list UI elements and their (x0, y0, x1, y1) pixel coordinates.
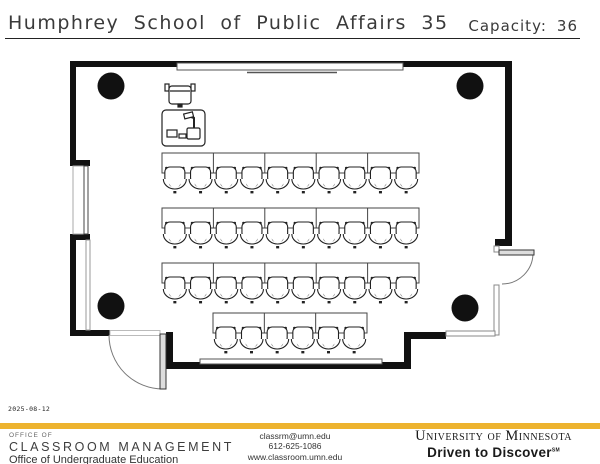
doors (109, 250, 534, 389)
wall-right-thin-lower (494, 285, 499, 335)
chair-icon (395, 277, 418, 304)
chair-icon (189, 167, 212, 194)
floor-plan-page: Humphrey School of Public Affairs 35 Cap… (0, 0, 600, 464)
chair-icon (343, 222, 366, 249)
column-icon (457, 73, 484, 100)
chair-icon (292, 277, 315, 304)
desk-row (162, 263, 419, 303)
instructor-station (162, 84, 205, 146)
wall-step-vertical (404, 332, 411, 369)
plan-date: 2025-08-12 (8, 405, 50, 413)
desk-row (162, 153, 419, 193)
whiteboard-rear (200, 359, 382, 364)
chair-icon (240, 327, 263, 354)
mouse-icon (179, 134, 186, 138)
chair-icon (317, 327, 340, 354)
chair-icon (395, 167, 418, 194)
chair-icon (318, 222, 341, 249)
door-leaf-left (160, 334, 166, 389)
window-glass-icon (84, 166, 88, 234)
chair-icon (240, 222, 263, 249)
tagline: Driven to DiscoverSM (415, 446, 572, 460)
floor-plan-svg (0, 0, 600, 400)
chair-icon (215, 167, 238, 194)
chair-icon (163, 222, 186, 249)
page-title: Humphrey School of Public Affairs 35 (8, 12, 449, 34)
chair-icon (240, 167, 263, 194)
tagline-service-mark: SM (552, 447, 560, 453)
chair-icon (215, 277, 238, 304)
contact-email: classrm@umn.edu (225, 431, 365, 441)
chair-icon (318, 277, 341, 304)
wall-bottom-left (70, 330, 110, 336)
chair-icon (395, 222, 418, 249)
wall-door-jamb (166, 332, 173, 369)
desk-row (162, 208, 419, 248)
wall-right-upper (505, 61, 512, 242)
chair-icon (266, 167, 289, 194)
chair-icon (266, 327, 289, 354)
column-icon (452, 295, 479, 322)
wall-chase (86, 240, 90, 330)
footer-brand-block: University of Minnesota Driven to Discov… (415, 429, 572, 459)
chair-icon (318, 167, 341, 194)
chair-icon (369, 277, 392, 304)
footer-office-block: OFFICE OF CLASSROOM MANAGEMENT Office of… (9, 433, 234, 464)
footer-contact-block: classrm@umn.edu 612-625-1086 www.classro… (225, 431, 365, 462)
column-icon (98, 293, 125, 320)
chair-icon (343, 327, 366, 354)
chair-icon (343, 167, 366, 194)
door-swing-left (109, 335, 163, 389)
table (162, 263, 419, 283)
chair-icon (266, 277, 289, 304)
capacity-readout: Capacity:36 (468, 17, 578, 35)
column-icon (98, 73, 125, 100)
wall-bottom (166, 362, 411, 369)
chair-icon (215, 222, 238, 249)
door-leaf-right (499, 250, 534, 255)
instructor-chair-icon (165, 84, 195, 107)
university-wordmark: University of Minnesota (415, 429, 572, 444)
header-underline (5, 38, 580, 39)
chair-icon (214, 327, 237, 354)
whiteboard-front (177, 63, 403, 70)
chair-icon (163, 277, 186, 304)
chair-icon (240, 277, 263, 304)
chair-icon (292, 222, 315, 249)
keyboard-icon (167, 130, 177, 137)
table (162, 208, 419, 228)
table (213, 313, 367, 333)
wall-right-step (495, 239, 512, 246)
chair-icon (266, 222, 289, 249)
table (162, 153, 419, 173)
capacity-label: Capacity: (468, 17, 547, 35)
chair-icon (291, 327, 314, 354)
contact-website: www.classroom.umn.edu (225, 452, 365, 462)
office-of-label: OFFICE OF (9, 433, 234, 440)
window-cap-top (70, 160, 90, 166)
wall-bottom-right-thin (446, 331, 495, 336)
chair-icon (369, 167, 392, 194)
chair-icon (189, 277, 212, 304)
capacity-value: 36 (557, 17, 578, 35)
window-cap-bottom (70, 234, 90, 240)
equipment-console-icon (162, 110, 205, 146)
door-threshold-left (110, 331, 160, 336)
wall-top (70, 61, 512, 67)
window-recess (73, 166, 88, 234)
thin-walls (73, 166, 499, 336)
chair-icon (369, 222, 392, 249)
wall-right-thin-upper (494, 246, 499, 252)
chair-icon (163, 167, 186, 194)
wall-left-upper (70, 61, 76, 162)
wall-left-lower (70, 238, 76, 336)
desk-row (213, 313, 367, 353)
undergraduate-education-label: Office of Undergraduate Education (9, 455, 234, 464)
classroom-management-label: CLASSROOM MANAGEMENT (9, 441, 234, 454)
document-camera-icon (184, 112, 200, 139)
door-swing-right (502, 253, 533, 284)
contact-phone: 612-625-1086 (225, 441, 365, 451)
chair-icon (189, 222, 212, 249)
walls (70, 61, 512, 369)
boards (177, 63, 403, 364)
chair-icon (292, 167, 315, 194)
seating-area (98, 73, 484, 354)
chair-icon (343, 277, 366, 304)
wall-step-horizontal (404, 332, 446, 339)
